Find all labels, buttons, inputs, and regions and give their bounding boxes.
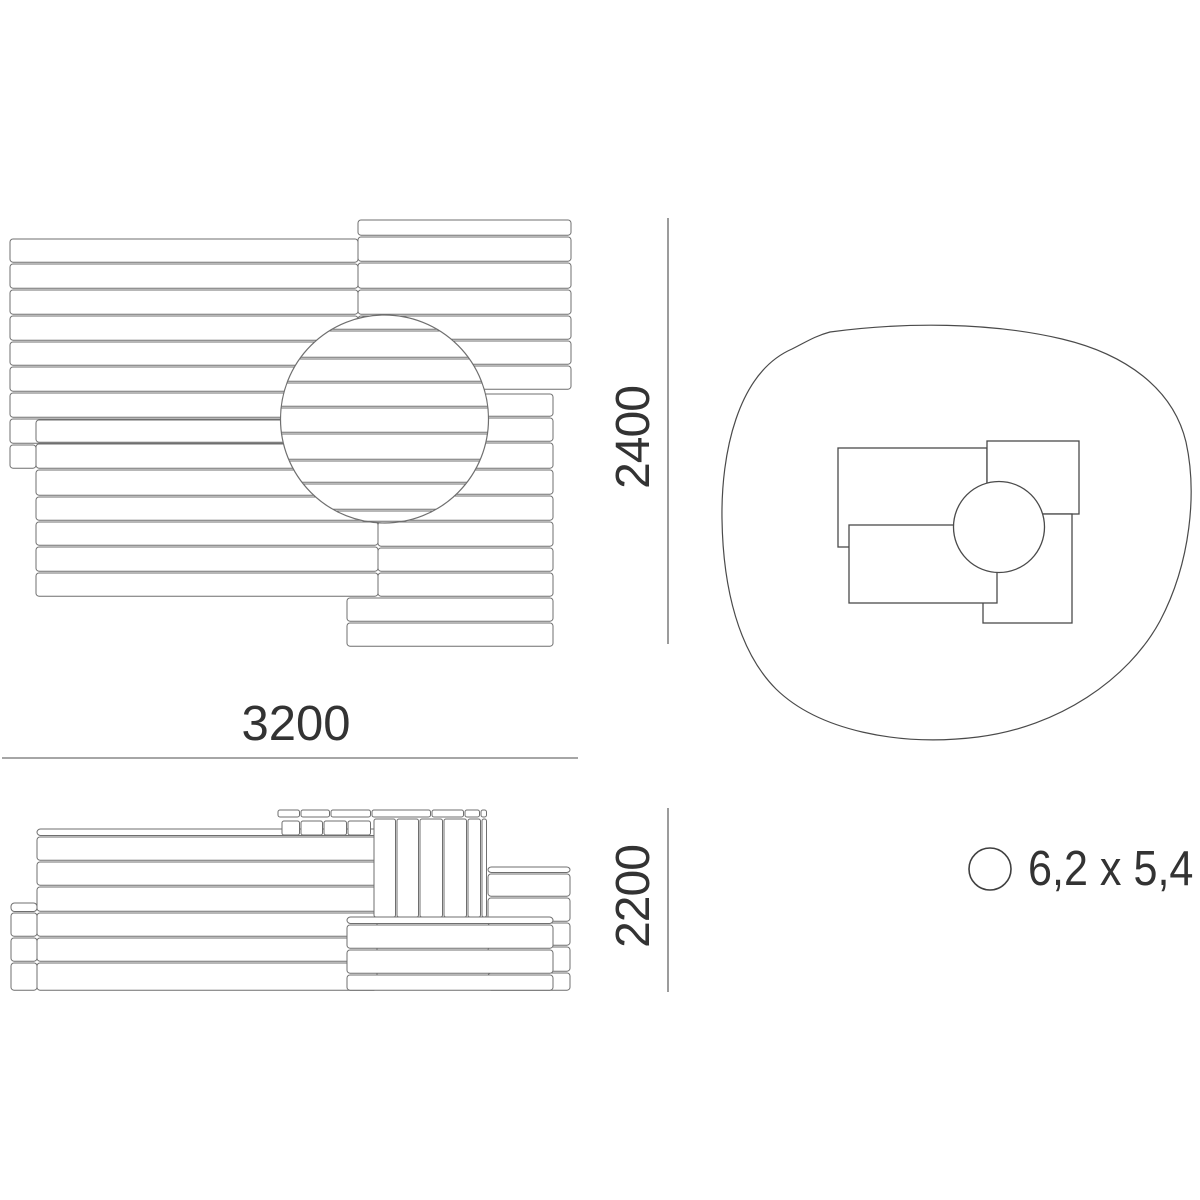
dimension-label-elevation-wrap: 2200 (583, 846, 683, 946)
technical-drawing-sheet: 3200 2400 2200 6,2 x 5,4 (0, 0, 1200, 1200)
dimension-label-plan-width: 3200 (122, 700, 470, 748)
safety-zone-diagram (722, 325, 1191, 740)
safety-zone-size-label: 6,2 x 5,4 (1028, 845, 1193, 893)
dimension-label-plan-depth-wrap: 2400 (583, 387, 683, 487)
safety-zone-circle-icon (969, 848, 1011, 890)
side-elevation-view (11, 810, 570, 990)
dimension-label-plan-depth: 2400 (606, 386, 661, 489)
drawing-canvas (0, 0, 1200, 1200)
footprint-circle (954, 482, 1045, 573)
plan-round-platform (278, 315, 492, 523)
dimension-label-elevation: 2200 (606, 845, 661, 948)
